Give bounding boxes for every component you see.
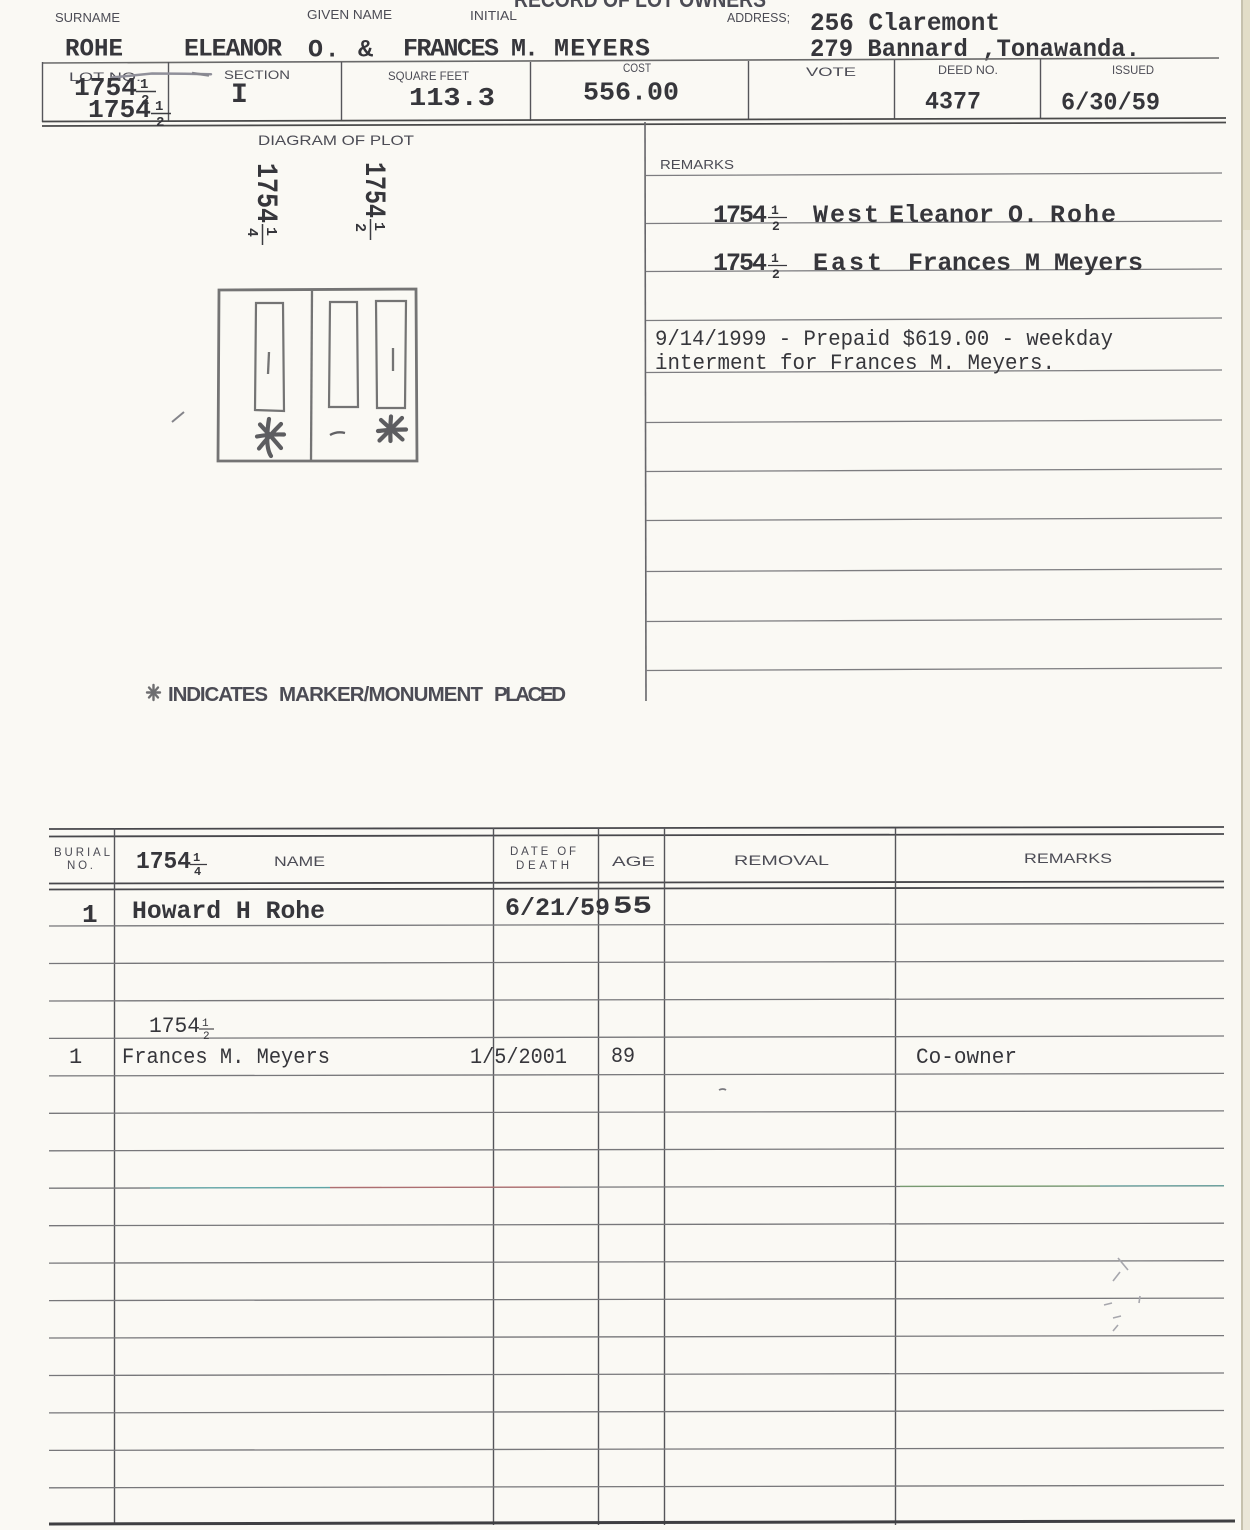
svg-text:INDICATES: INDICATES: [168, 683, 268, 706]
svg-text:1: 1: [69, 1045, 82, 1070]
svg-text:COST: COST: [623, 61, 652, 75]
svg-text:VOTE: VOTE: [806, 65, 856, 79]
svg-text:Howard H Rohe: Howard H Rohe: [132, 897, 325, 926]
svg-text:9/14/1999 - Prepaid $619.00 -: 9/14/1999 - Prepaid $619.00 - weekday: [655, 327, 1113, 352]
svg-text:256 Claremont: 256 Claremont: [810, 9, 1000, 38]
svg-text:M.: M.: [511, 35, 539, 64]
svg-text:2: 2: [156, 115, 164, 131]
svg-text:I: I: [231, 80, 248, 111]
svg-text:O. &: O. &: [308, 36, 373, 65]
svg-text:DIAGRAM OF PLOT: DIAGRAM OF PLOT: [258, 132, 415, 148]
svg-text:Rohe: Rohe: [1050, 201, 1116, 230]
svg-text:4377: 4377: [925, 88, 981, 117]
svg-text:1: 1: [771, 203, 779, 218]
svg-text:1: 1: [140, 77, 148, 93]
svg-text:1754: 1754: [356, 162, 390, 218]
svg-text:2: 2: [203, 1031, 210, 1043]
svg-text:4: 4: [243, 228, 260, 237]
svg-text:ADDRESS;: ADDRESS;: [727, 11, 790, 25]
svg-text:1754: 1754: [713, 201, 767, 230]
svg-text:1: 1: [155, 99, 163, 115]
svg-text:1754: 1754: [248, 163, 282, 223]
svg-text:DEATH: DEATH: [516, 860, 569, 872]
svg-text:ROHE: ROHE: [65, 35, 123, 64]
svg-text:REMOVAL: REMOVAL: [734, 852, 829, 868]
svg-text:1/5/2001: 1/5/2001: [470, 1045, 567, 1070]
svg-text:113.3: 113.3: [409, 83, 495, 113]
svg-text:2: 2: [772, 219, 780, 234]
svg-text:GIVEN NAME: GIVEN NAME: [307, 8, 392, 22]
svg-text:Meyers: Meyers: [1054, 249, 1143, 278]
svg-text:O.: O.: [1008, 201, 1038, 230]
svg-text:1: 1: [262, 227, 279, 236]
svg-text:4: 4: [194, 865, 201, 879]
svg-text:M: M: [1025, 249, 1040, 278]
svg-text:NO.: NO.: [67, 860, 93, 872]
svg-text:6/21/59: 6/21/59: [505, 894, 610, 923]
svg-text:REMARKS: REMARKS: [1024, 850, 1112, 866]
svg-text:MARKER/MONUMENT: MARKER/MONUMENT: [279, 683, 483, 706]
svg-text:1754: 1754: [149, 1014, 200, 1039]
svg-text:Frances: Frances: [908, 249, 1011, 278]
svg-text:Eleanor: Eleanor: [889, 201, 994, 230]
svg-text:1754: 1754: [88, 95, 151, 125]
svg-text:PLACED: PLACED: [494, 683, 566, 706]
svg-text:interment for Frances M. Meyer: interment for Frances M. Meyers.: [655, 351, 1055, 376]
svg-text:REMARKS: REMARKS: [660, 157, 734, 172]
svg-text:MEYERS: MEYERS: [554, 35, 650, 64]
svg-text:ISSUED: ISSUED: [1112, 63, 1154, 77]
svg-text:NAME: NAME: [274, 854, 325, 869]
svg-text:1: 1: [202, 1018, 209, 1030]
svg-text:FRANCES: FRANCES: [403, 35, 499, 64]
svg-text:INITIAL: INITIAL: [470, 9, 517, 23]
svg-text:AGE: AGE: [612, 854, 655, 869]
svg-text:1754: 1754: [136, 849, 191, 876]
svg-text:2: 2: [772, 267, 780, 282]
svg-text:1: 1: [82, 900, 98, 930]
svg-text:ELEANOR: ELEANOR: [184, 35, 282, 64]
svg-text:2: 2: [351, 223, 368, 232]
svg-text:89: 89: [611, 1044, 635, 1069]
svg-text:Co-owner: Co-owner: [916, 1045, 1017, 1070]
svg-text:SQUARE FEET: SQUARE FEET: [388, 69, 470, 83]
svg-text:1: 1: [370, 222, 387, 231]
svg-text:DEED NO.: DEED NO.: [938, 63, 998, 77]
svg-text:1: 1: [771, 251, 779, 266]
svg-text:SURNAME: SURNAME: [55, 11, 120, 25]
svg-text:1: 1: [193, 851, 200, 865]
svg-text:556.00: 556.00: [583, 78, 679, 108]
svg-text:1754: 1754: [713, 249, 767, 278]
svg-text:West: West: [813, 201, 879, 230]
svg-text:Frances M. Meyers: Frances M. Meyers: [122, 1045, 330, 1070]
svg-text:6/30/59: 6/30/59: [1061, 89, 1160, 118]
svg-text:55: 55: [613, 892, 652, 921]
